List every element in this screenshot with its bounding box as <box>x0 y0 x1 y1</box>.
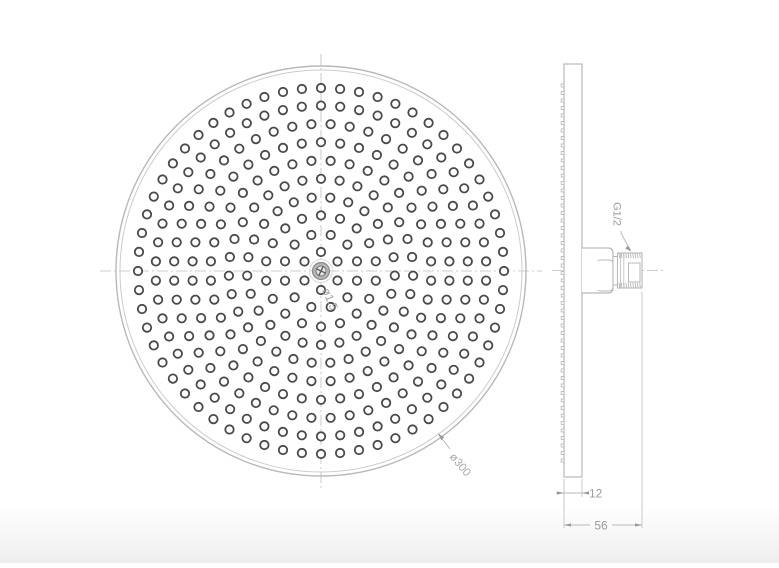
nozzle-hole <box>317 396 325 404</box>
nozzle-hole <box>403 235 411 243</box>
outer-diameter-callout: ø300 <box>438 434 473 480</box>
nozzle-bump <box>561 444 564 447</box>
nozzle-bump <box>561 264 564 267</box>
nozzle-hole <box>169 374 177 382</box>
nozzle-hole <box>355 428 363 436</box>
nozzle-hole <box>465 374 473 382</box>
nozzle-hole <box>150 341 158 349</box>
nozzle-hole <box>365 295 373 303</box>
nozzle-hole <box>460 184 468 192</box>
nozzle-hole <box>138 229 146 237</box>
nozzle-hole <box>298 338 306 346</box>
nozzle-hole <box>491 210 499 218</box>
nozzle-bump <box>561 167 564 170</box>
nozzle-hole <box>281 309 289 317</box>
nozzle-hole <box>261 151 269 159</box>
nozzle-bump <box>561 107 564 110</box>
nozzle-hole <box>461 296 469 304</box>
nozzle-bump <box>561 174 564 177</box>
nozzle-hole <box>185 332 193 340</box>
nozzle-hole <box>260 422 268 430</box>
nozzle-hole <box>298 215 306 223</box>
nozzle-bump <box>561 204 564 207</box>
nozzle-hole <box>270 167 278 175</box>
nozzle-bump <box>561 309 564 312</box>
nozzle-hole <box>185 202 193 210</box>
nozzle-bump <box>561 144 564 147</box>
thread-callout: G1/2 <box>611 202 632 251</box>
nozzle-hole <box>228 290 236 298</box>
leader-line <box>621 231 631 250</box>
nozzle-hole <box>178 220 186 228</box>
nozzle-bump <box>561 332 564 335</box>
nozzle-hole <box>216 347 224 355</box>
nozzle-hole <box>307 120 315 128</box>
nozzle-hole <box>449 202 457 210</box>
nozzle-hole <box>464 257 472 265</box>
nozzle-hole <box>252 135 260 143</box>
dimension-arrowhead <box>582 491 589 494</box>
front-view: ø1.5 ø300 <box>100 54 542 491</box>
drawing-canvas: ø1.5 ø300 G1/2 <box>0 0 779 563</box>
nozzle-hole <box>234 307 242 315</box>
nozzle-hole <box>408 405 416 413</box>
nozzle-hole <box>496 305 504 313</box>
nozzle-hole <box>475 219 483 227</box>
nozzle-hole <box>364 128 372 136</box>
nozzle-hole <box>327 231 335 239</box>
nozzle-hole <box>244 160 252 168</box>
nozzle-hole <box>317 101 325 109</box>
nozzle-hole <box>344 198 352 206</box>
nozzle-hole <box>407 330 415 338</box>
nozzle-hole <box>439 403 447 411</box>
nozzle-hole <box>197 153 205 161</box>
nozzle-bump <box>561 197 564 200</box>
nozzle-hole <box>135 248 143 256</box>
nozzle-bump <box>561 399 564 402</box>
nozzle-hole <box>336 85 344 93</box>
nozzle-hole <box>437 220 445 228</box>
nozzle-hole <box>197 314 205 322</box>
connector-collar <box>613 257 618 286</box>
nozzle-hole <box>391 434 399 442</box>
nozzle-hole <box>427 257 435 265</box>
nozzle-hole <box>244 323 252 331</box>
nozzle-hole <box>195 185 203 193</box>
nozzle-bump <box>561 99 564 102</box>
nozzle-hole <box>344 355 352 363</box>
nozzle-hole <box>220 377 228 385</box>
nozzle-hole <box>353 257 361 265</box>
nozzle-bump <box>561 339 564 342</box>
nozzle-hole <box>423 140 431 148</box>
nozzle-hole <box>243 119 251 127</box>
nozzle-hole <box>390 323 398 331</box>
dimension-arrowhead <box>635 523 642 526</box>
nozzle-hole <box>260 441 268 449</box>
nozzle-hole <box>184 168 192 176</box>
nozzle-hole <box>391 119 399 127</box>
nozzle-hole <box>408 129 416 137</box>
nozzle-bump <box>561 279 564 282</box>
nozzle-hole <box>353 277 361 285</box>
nozzle-hole <box>307 303 315 311</box>
nozzle-hole <box>290 240 298 248</box>
nozzle-hole <box>499 286 507 294</box>
nozzle-bump <box>561 452 564 455</box>
nozzle-bump <box>561 249 564 252</box>
nozzle-hole <box>399 389 407 397</box>
nozzle-hole <box>307 157 315 165</box>
nozzle-hole <box>326 414 334 422</box>
nozzle-hole <box>395 345 403 353</box>
nozzle-hole <box>289 355 297 363</box>
nozzle-hole <box>364 406 372 414</box>
nozzle-bump <box>561 257 564 260</box>
nozzle-hole <box>343 293 351 301</box>
nozzle-hole <box>181 144 189 152</box>
nozzle-hole <box>288 160 296 168</box>
nozzle-hole <box>262 277 270 285</box>
nozzle-hole <box>308 194 316 202</box>
nozzle-hole <box>197 220 205 228</box>
nozzle-bump <box>561 122 564 125</box>
nozzle-hole <box>355 88 363 96</box>
nozzle-hole <box>384 235 392 243</box>
nozzle-hole <box>158 314 166 322</box>
nozzle-hole <box>355 144 363 152</box>
nozzle-hole <box>370 191 378 199</box>
nozzle-hole <box>226 330 234 338</box>
nozzle-hole <box>298 431 306 439</box>
nozzle-hole <box>279 106 287 114</box>
nozzle-hole <box>377 337 385 345</box>
nozzle-bump <box>561 152 564 155</box>
nozzle-hole <box>197 380 205 388</box>
nozzle-bump <box>561 272 564 275</box>
nozzle-bump <box>561 182 564 185</box>
nozzle-bump <box>561 189 564 192</box>
nozzle-hole <box>307 414 315 422</box>
nozzle-hole <box>372 277 380 285</box>
nozzle-hole <box>178 314 186 322</box>
nozzle-hole <box>449 332 457 340</box>
nozzle-hole <box>326 359 334 367</box>
nozzle-hole <box>135 286 143 294</box>
nozzle-hole <box>239 345 247 353</box>
nozzle-hole <box>465 159 473 167</box>
nozzle-hole <box>464 276 472 284</box>
nozzle-bump <box>561 407 564 410</box>
nozzle-hole <box>298 394 306 402</box>
nozzle-hole <box>242 100 250 108</box>
nozzle-hole <box>253 357 261 365</box>
nozzle-hole <box>373 93 381 101</box>
nozzle-hole <box>336 431 344 439</box>
nozzle-hole <box>496 229 504 237</box>
nozzle-hole <box>242 434 250 442</box>
nozzle-hole <box>252 399 260 407</box>
nozzle-hole <box>281 257 289 265</box>
nozzle-hole <box>333 276 341 284</box>
nozzle-hole <box>373 383 381 391</box>
nozzle-hole <box>326 157 334 165</box>
nozzle-hole <box>243 271 251 279</box>
nozzle-hole <box>298 319 306 327</box>
nozzle-hole <box>414 156 422 164</box>
nozzle-hole <box>373 441 381 449</box>
nozzle-hole <box>391 415 399 423</box>
nozzle-hole <box>499 248 507 256</box>
nozzle-hole <box>404 172 412 180</box>
nozzle-hole <box>170 276 178 284</box>
nozzle-hole <box>461 238 469 246</box>
nozzle-hole <box>427 276 435 284</box>
nozzle-hole <box>260 93 268 101</box>
nozzle-hole <box>281 277 289 285</box>
nozzle-hole <box>460 350 468 358</box>
dimension-arrowhead <box>557 491 564 494</box>
nozzle-hole <box>445 257 453 265</box>
nozzle-hole <box>211 140 219 148</box>
nozzle-hole <box>404 361 412 369</box>
nozzle-bump <box>561 219 564 222</box>
nozzle-hole <box>317 432 325 440</box>
nozzle-hole <box>364 367 372 375</box>
nozzle-hole <box>195 349 203 357</box>
nozzle-hole <box>500 267 508 275</box>
nozzle-hole <box>290 198 298 206</box>
nozzle-hole <box>209 119 217 127</box>
nozzle-hole <box>288 374 296 382</box>
nozzle-hole <box>260 111 268 119</box>
nozzle-hole <box>456 314 464 322</box>
nozzle-hole <box>326 120 334 128</box>
nozzle-hole <box>326 194 334 202</box>
nozzle-hole <box>374 220 382 228</box>
nozzle-hole <box>307 377 315 385</box>
nozzle-hole <box>365 239 373 247</box>
nozzle-hole <box>307 231 315 239</box>
nozzle-hole <box>272 347 280 355</box>
nozzle-hole <box>367 321 375 329</box>
nozzle-hole <box>353 309 361 317</box>
nozzle-hole <box>138 305 146 313</box>
nozzle-hole <box>437 314 445 322</box>
nozzle-bump <box>561 242 564 245</box>
nozzle-hole <box>206 170 214 178</box>
nozzle-hole <box>143 323 151 331</box>
nozzle-hole <box>300 276 308 284</box>
nozzle-hole <box>264 191 272 199</box>
nozzle-hole <box>250 203 258 211</box>
nozzle-hole <box>336 215 344 223</box>
nozzle-hole <box>266 321 274 329</box>
nozzle-hole <box>173 296 181 304</box>
nozzle-hole <box>437 153 445 161</box>
faceplate-side-profile <box>564 64 582 477</box>
nozzle-hole <box>482 257 490 265</box>
nozzle-hole <box>288 411 296 419</box>
nozzle-hole <box>355 106 363 114</box>
nozzle-hole <box>424 238 432 246</box>
nozzle-hole <box>352 332 360 340</box>
nozzle-hole <box>355 446 363 454</box>
nozzle-hole <box>475 175 483 183</box>
nozzle-hole <box>260 220 268 228</box>
nozzle-hole <box>407 203 415 211</box>
nozzle-hole <box>409 272 417 280</box>
hole-diameter-label: ø1.5 <box>319 286 339 312</box>
nozzle-bump <box>561 227 564 230</box>
nozzle-bump <box>561 369 564 372</box>
nozzle-hole <box>389 253 397 261</box>
nozzle-hole <box>317 84 325 92</box>
nozzle-hole <box>216 187 224 195</box>
nozzle-hole <box>317 248 325 256</box>
nozzle-hole <box>469 332 477 340</box>
nozzle-hole <box>211 394 219 402</box>
nozzle-bump <box>561 459 564 462</box>
nozzle-hole <box>281 224 289 232</box>
nozzle-hole <box>261 383 269 391</box>
nozzle-hole <box>380 357 388 365</box>
nozzle-hole <box>188 257 196 265</box>
leader-arrowhead <box>625 246 631 252</box>
nozzle-hole <box>418 187 426 195</box>
nozzle-hole <box>188 276 196 284</box>
nozzle-hole <box>427 170 435 178</box>
nozzle-hole <box>226 253 234 261</box>
nozzle-hole <box>423 394 431 402</box>
nozzle-hole <box>288 123 296 131</box>
nozzle-hole <box>247 290 255 298</box>
thickness-value: 12 <box>589 487 603 501</box>
nozzle-hole <box>372 257 380 265</box>
nozzle-hole <box>389 373 397 381</box>
nozzle-hole <box>336 319 344 327</box>
nozzle-hole <box>456 220 464 228</box>
nozzle-hole <box>317 322 325 330</box>
nozzle-hole <box>298 85 306 93</box>
nozzle-hole <box>173 238 181 246</box>
nozzle-hole <box>298 449 306 457</box>
nozzle-hole <box>174 184 182 192</box>
nozzle-bump <box>561 377 564 380</box>
nozzle-hole <box>158 358 166 366</box>
nozzle-hole <box>270 406 278 414</box>
nozzle-hole <box>343 240 351 248</box>
nozzle-hole <box>220 156 228 164</box>
nozzle-hole <box>170 257 178 265</box>
nozzle-hole <box>364 167 372 175</box>
nozzle-hole <box>424 415 432 423</box>
nozzle-hole <box>353 182 361 190</box>
nozzle-hole <box>336 103 344 111</box>
nozzle-hole <box>424 295 432 303</box>
nozzle-bump <box>561 422 564 425</box>
nozzle-hole <box>298 177 306 185</box>
nozzle-hole <box>384 203 392 211</box>
nozzle-hole <box>336 394 344 402</box>
nozzle-hole <box>382 135 390 143</box>
nozzle-bump <box>561 92 564 95</box>
nozzle-hole <box>382 399 390 407</box>
nozzle-hole <box>281 332 289 340</box>
nozzle-hole <box>270 367 278 375</box>
nozzle-bump <box>561 84 564 87</box>
nozzle-hole <box>439 185 447 193</box>
nozzle-bump <box>561 392 564 395</box>
nozzle-hole <box>290 293 298 301</box>
side-view: G1/2 12 56 <box>552 64 663 533</box>
nozzle-hole <box>424 119 432 127</box>
nozzle-hole <box>244 253 252 261</box>
nozzle-hole <box>428 331 436 339</box>
nozzle-hole <box>150 192 158 200</box>
nozzle-bump <box>561 347 564 350</box>
nozzle-hole <box>169 159 177 167</box>
nozzle-hole <box>317 138 325 146</box>
nozzle-hole <box>235 145 243 153</box>
nozzle-hole <box>346 123 354 131</box>
nozzle-hole <box>225 108 233 116</box>
nozzle-bump <box>561 362 564 365</box>
nozzle-hole <box>226 405 234 413</box>
nozzle-hole <box>226 129 234 137</box>
nozzle-hole <box>279 144 287 152</box>
nozzle-hole <box>243 415 251 423</box>
nozzle-hole <box>414 377 422 385</box>
nozzle-bump <box>561 212 564 215</box>
nozzle-hole <box>437 380 445 388</box>
nozzle-hole <box>362 347 370 355</box>
nozzle-hole <box>143 210 151 218</box>
nozzle-bump <box>561 234 564 237</box>
nozzle-hole <box>439 349 447 357</box>
nozzle-bump <box>561 429 564 432</box>
nozzle-hole <box>279 88 287 96</box>
nozzle-hole <box>380 176 388 184</box>
nozzle-hole <box>262 257 270 265</box>
nozzle-hole <box>253 176 261 184</box>
inlet-bore <box>629 263 641 282</box>
nozzle-hole <box>308 359 316 367</box>
nozzle-bump <box>561 294 564 297</box>
nozzle-hole <box>229 172 237 180</box>
nozzle-hole <box>373 422 381 430</box>
nozzle-hole <box>395 189 403 197</box>
nozzle-hole <box>239 218 247 226</box>
nozzle-hole <box>226 203 234 211</box>
threaded-inlet <box>618 253 643 288</box>
nozzle-hole <box>408 425 416 433</box>
nozzle-hole <box>269 295 277 303</box>
nozzle-hole <box>450 366 458 374</box>
nozzle-hole <box>379 306 387 314</box>
nozzle-hole <box>235 389 243 397</box>
nozzle-hole <box>317 341 325 349</box>
dimension-arrowhead <box>564 523 571 526</box>
nozzle-hole <box>225 425 233 433</box>
nozzle-hole <box>269 239 277 247</box>
nozzle-hole <box>165 332 173 340</box>
nozzle-hole <box>191 238 199 246</box>
nozzle-hole <box>210 295 218 303</box>
nozzle-hole <box>480 296 488 304</box>
nozzle-hole <box>484 192 492 200</box>
